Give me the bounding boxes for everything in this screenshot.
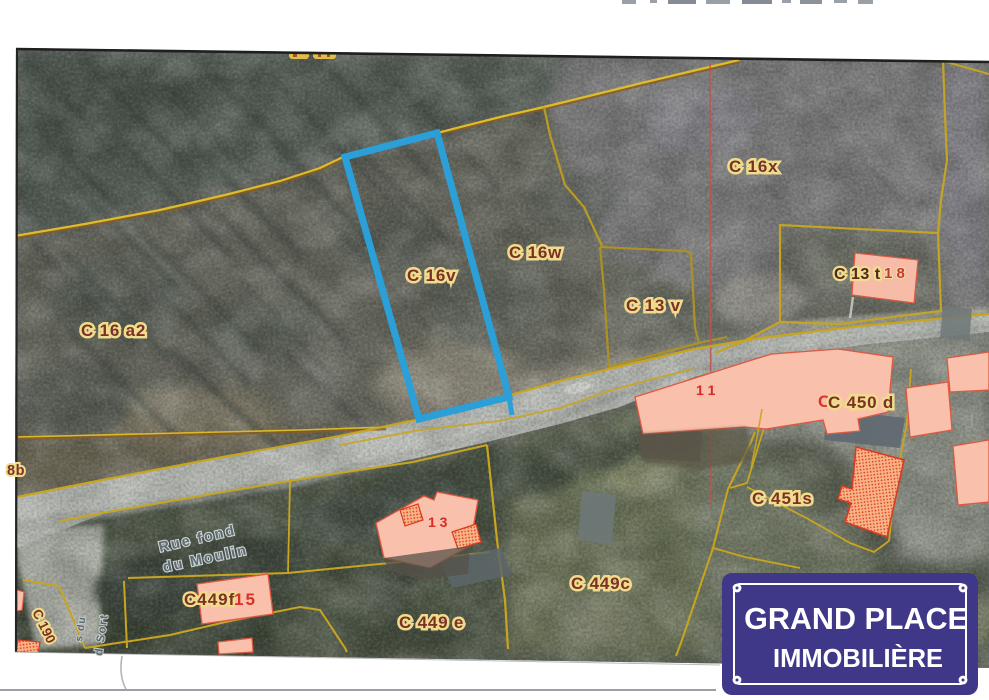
svg-text:1 1: 1 1	[696, 382, 716, 398]
svg-text:C 450 d: C 450 d	[828, 393, 894, 412]
svg-text:C 16w: C 16w	[509, 243, 562, 262]
svg-text:C 449 e: C 449 e	[399, 613, 464, 632]
svg-text:C 16v: C 16v	[407, 266, 456, 285]
svg-text:IMMOBILIÈRE: IMMOBILIÈRE	[773, 644, 943, 673]
svg-text:C449f: C449f	[184, 590, 235, 609]
svg-text:C 16x: C 16x	[729, 157, 778, 176]
svg-text:GRAND PLACE: GRAND PLACE	[744, 602, 968, 636]
svg-text:8b: 8b	[7, 463, 25, 479]
svg-text:1 3: 1 3	[428, 514, 448, 530]
svg-text:C 16 a2: C 16 a2	[81, 321, 146, 340]
svg-text:C 451s: C 451s	[752, 489, 813, 508]
svg-text:C 449c: C 449c	[571, 574, 631, 593]
svg-text:C 13 t: C 13 t	[834, 266, 881, 283]
svg-text:1 8: 1 8	[884, 265, 905, 282]
svg-text:15: 15	[234, 590, 257, 609]
svg-text:C 13 v: C 13 v	[626, 296, 681, 315]
